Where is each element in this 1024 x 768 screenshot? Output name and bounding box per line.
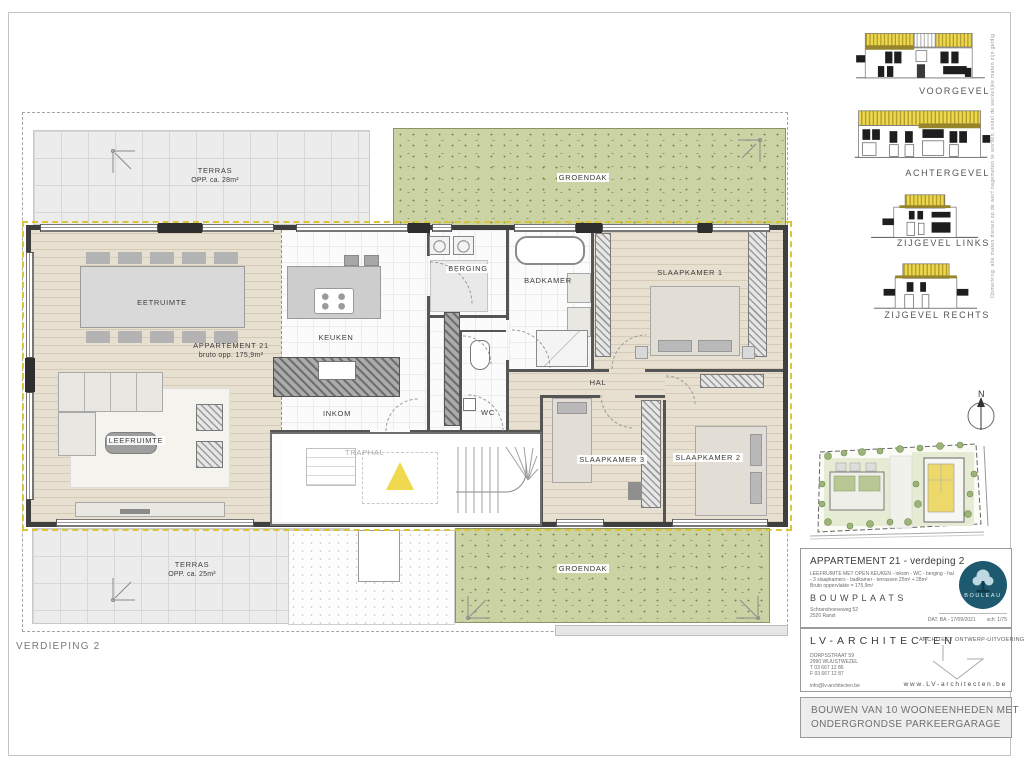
floor-level-label: VERDIEPING 2 bbox=[16, 641, 100, 652]
architect-mark-icon bbox=[931, 645, 1001, 681]
north-arrow: N bbox=[958, 388, 1004, 434]
titleblock-project-title: BOUWEN VAN 10 WOONEENHEDEN MET ONDERGRON… bbox=[800, 697, 1012, 738]
logo-circle: BOULEAU bbox=[959, 561, 1007, 609]
bouwplaats-label: BOUWPLAATS bbox=[810, 593, 907, 603]
titleblock-title: APPARTEMENT 21 - verdeping 2 bbox=[810, 556, 965, 567]
elevation-zijgevel-rechts bbox=[868, 260, 983, 313]
elevation-zijgevel-links bbox=[862, 192, 987, 244]
elevation-label-zijgevel-links: ZIJGEVEL LINKS bbox=[897, 238, 990, 248]
date-scale: DAT. BA - 17/09/2021 sch: 1/75 bbox=[801, 617, 1007, 623]
elevation-voorgevel bbox=[848, 28, 993, 86]
logo-text: BOULEAU bbox=[959, 593, 1007, 599]
architect-line4: F 03 667 12 87 bbox=[810, 671, 844, 678]
titleblock-desc-3: Bruto oppervlakte = 175,9m² bbox=[810, 583, 873, 590]
titleblock-architect: LV-ARCHITECTEN DORPSSTRAAT 59 2990 WUUST… bbox=[800, 628, 1012, 692]
project-title-line1: BOUWEN VAN 10 WOONEENHEDEN MET bbox=[811, 705, 1019, 716]
architect-role: ARCHITECT ONTWERP-UITVOERING bbox=[919, 637, 1009, 643]
north-label: N bbox=[978, 389, 985, 399]
architect-email: info@lv-architecten.be bbox=[810, 683, 860, 690]
side-note: Opmerking: alle maten dienen op de werf … bbox=[990, 28, 1002, 298]
elevation-label-voorgevel: VOORGEVEL bbox=[919, 86, 990, 96]
architect-website: www.LV-architecten.be bbox=[901, 681, 1007, 688]
project-title-line2: ONDERGRONDSE PARKEERGARAGE bbox=[811, 719, 1001, 730]
elevation-label-achtergevel: ACHTERGEVEL bbox=[905, 168, 990, 178]
site-plan bbox=[808, 432, 990, 540]
elevation-achtergevel bbox=[850, 106, 992, 166]
logo-tree-icon bbox=[959, 561, 1007, 609]
elevation-label-zijgevel-rechts: ZIJGEVEL RECHTS bbox=[884, 310, 990, 320]
drawing-sheet: TERRAS OPP. ca. 28m² GROENDAK TERRAS OPP… bbox=[0, 0, 1024, 768]
date-scale-divider bbox=[939, 613, 1007, 614]
titleblock-project: APPARTEMENT 21 - verdeping 2 LEEFRUIMTE … bbox=[800, 548, 1012, 628]
